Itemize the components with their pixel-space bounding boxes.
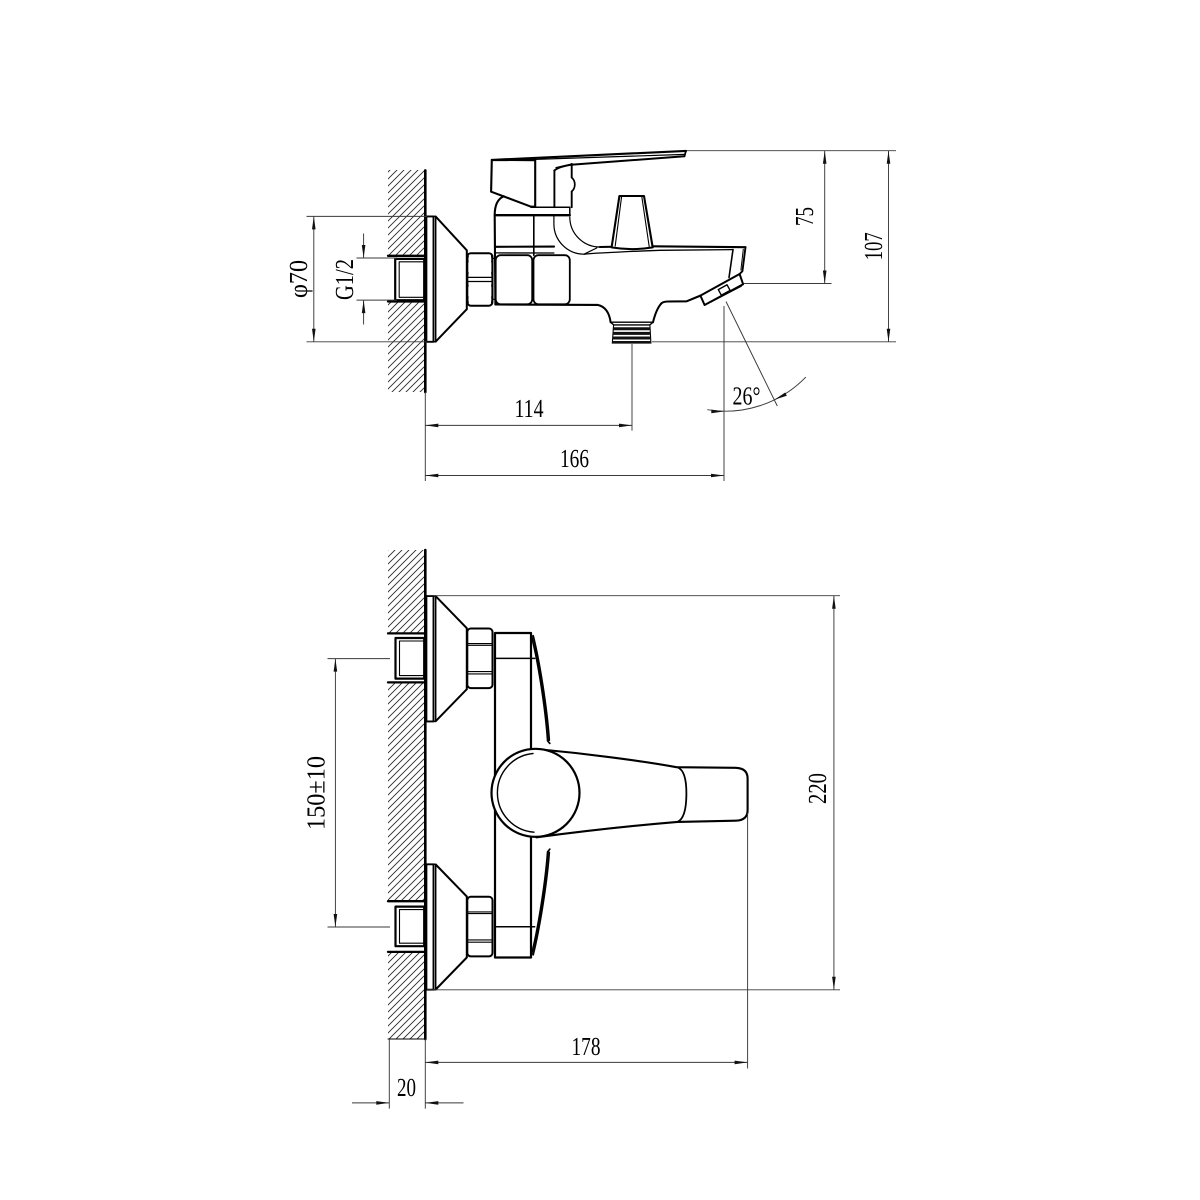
svg-text:166: 166 <box>560 444 589 473</box>
svg-text:220: 220 <box>803 773 832 804</box>
svg-text:20: 20 <box>397 1073 416 1102</box>
svg-text:114: 114 <box>515 394 544 423</box>
svg-text:178: 178 <box>572 1032 601 1061</box>
svg-text:75: 75 <box>790 207 819 226</box>
svg-text:G1/2: G1/2 <box>330 259 359 300</box>
svg-text:26°: 26° <box>733 382 761 411</box>
svg-text:φ70: φ70 <box>284 260 313 298</box>
svg-text:150±10: 150±10 <box>301 756 330 830</box>
svg-text:107: 107 <box>859 232 888 260</box>
